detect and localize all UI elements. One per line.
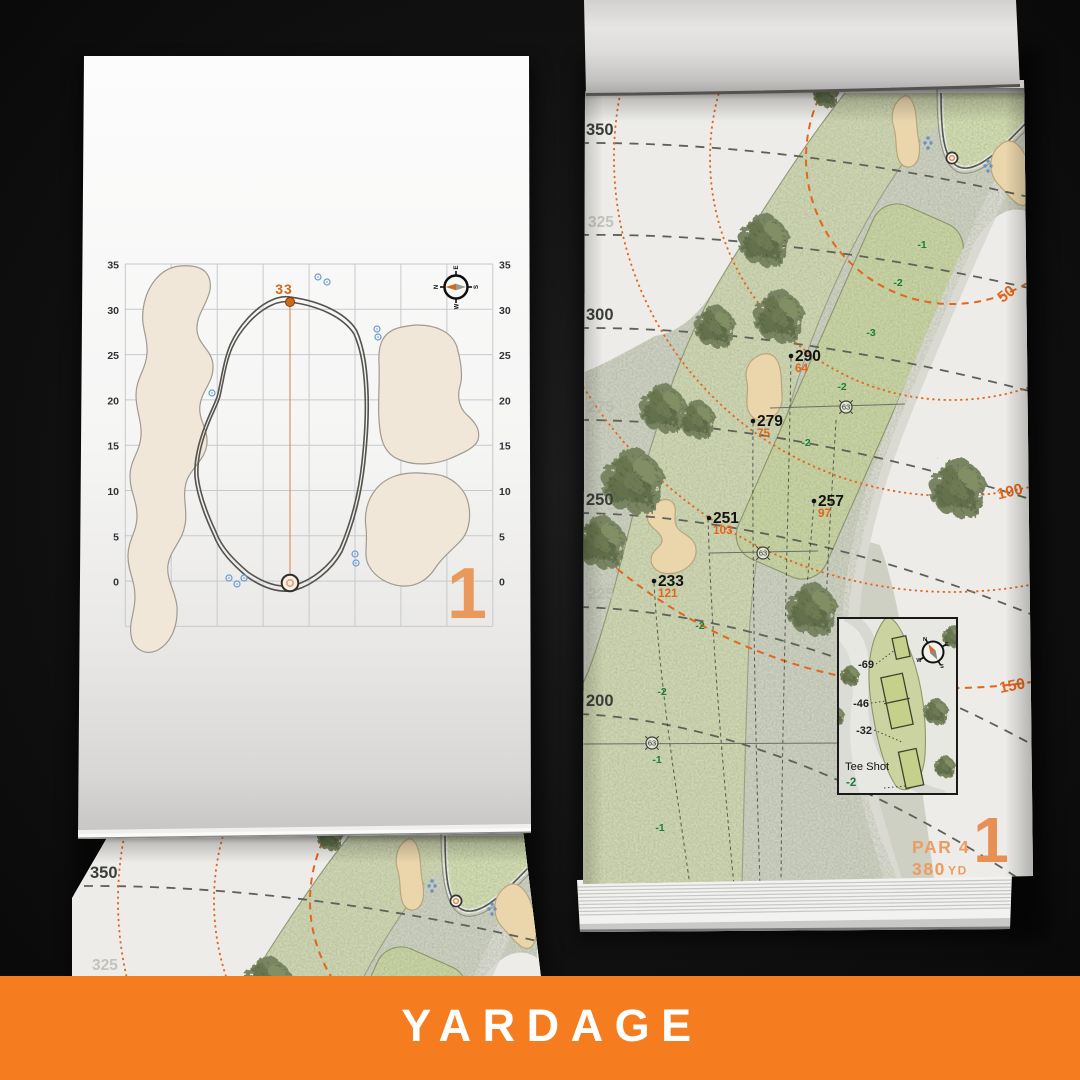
svg-text:35: 35 <box>499 260 511 272</box>
svg-text:35: 35 <box>107 260 119 272</box>
svg-text:W: W <box>455 303 461 309</box>
svg-text:10: 10 <box>499 486 511 498</box>
svg-text:1: 1 <box>447 554 487 634</box>
svg-text:25: 25 <box>499 350 511 362</box>
svg-text:15: 15 <box>107 441 119 453</box>
svg-text:0: 0 <box>113 577 119 589</box>
svg-text:20: 20 <box>499 395 511 407</box>
svg-text:E: E <box>454 265 460 269</box>
svg-text:33: 33 <box>275 281 293 297</box>
svg-text:5: 5 <box>113 531 119 543</box>
svg-text:10: 10 <box>107 486 119 498</box>
svg-text:0: 0 <box>499 577 505 589</box>
svg-text:15: 15 <box>499 441 511 453</box>
svg-text:S: S <box>474 285 480 289</box>
svg-text:25: 25 <box>107 350 119 362</box>
svg-text:N: N <box>434 285 440 289</box>
svg-text:YARDAGE: YARDAGE <box>401 1000 702 1051</box>
svg-text:30: 30 <box>107 305 119 317</box>
svg-text:20: 20 <box>107 395 119 407</box>
svg-text:30: 30 <box>499 305 511 317</box>
svg-text:5: 5 <box>499 531 505 543</box>
